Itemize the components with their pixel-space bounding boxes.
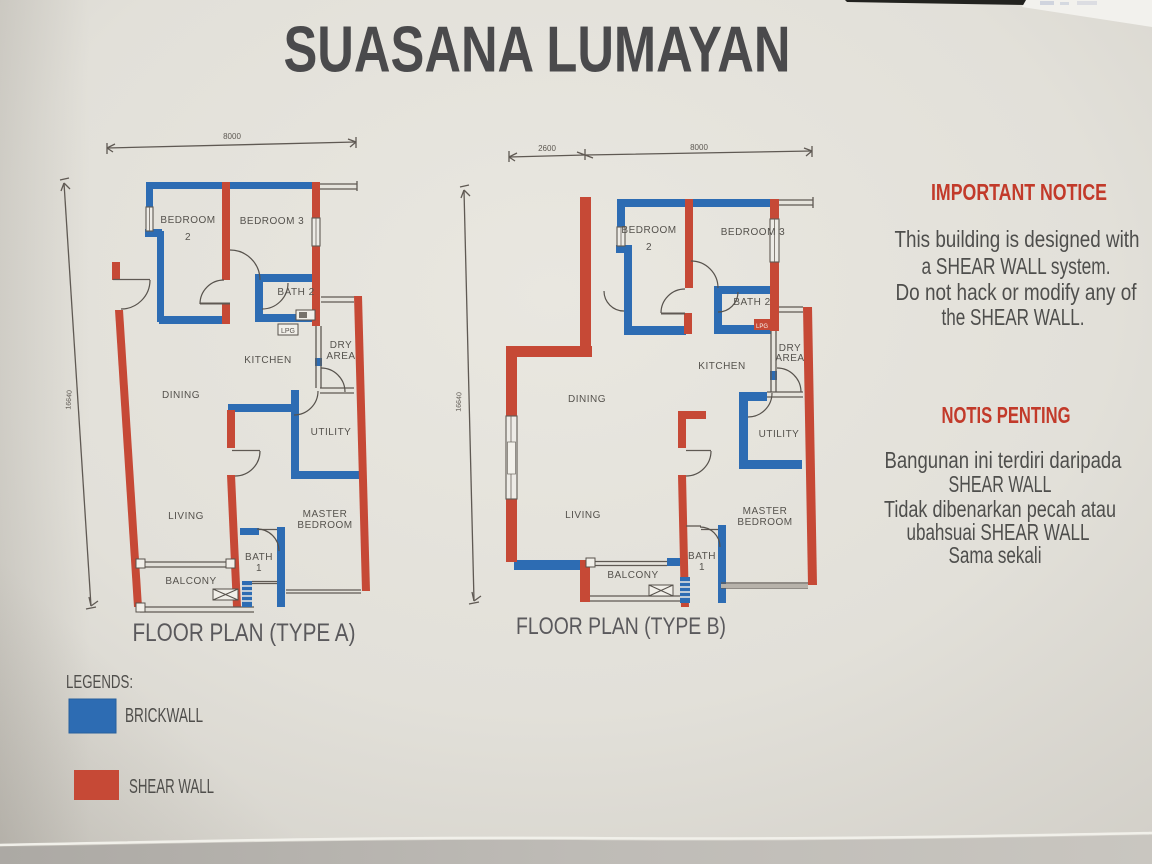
svg-text:1: 1: [256, 563, 262, 574]
svg-text:8000: 8000: [690, 143, 708, 152]
svg-text:a SHEAR WALL system.: a SHEAR WALL system.: [922, 253, 1111, 279]
svg-text:NOTIS PENTING: NOTIS PENTING: [942, 402, 1071, 428]
svg-text:SHEAR WALL: SHEAR WALL: [129, 776, 214, 798]
svg-text:Sama sekali: Sama sekali: [949, 542, 1042, 568]
svg-text:MASTER: MASTER: [303, 509, 348, 520]
svg-text:AREA: AREA: [775, 353, 804, 364]
svg-text:16640: 16640: [65, 390, 73, 410]
svg-text:BATH: BATH: [245, 552, 273, 563]
svg-text:BALCONY: BALCONY: [607, 570, 658, 581]
svg-text:BEDROOM: BEDROOM: [621, 225, 676, 236]
svg-text:16640: 16640: [456, 392, 464, 412]
svg-text:FLOOR PLAN (TYPE B): FLOOR PLAN (TYPE B): [516, 613, 726, 640]
svg-text:BRICKWALL: BRICKWALL: [125, 705, 203, 727]
svg-text:DINING: DINING: [568, 394, 606, 405]
svg-text:2: 2: [646, 242, 652, 253]
svg-text:MASTER: MASTER: [743, 506, 788, 517]
svg-text:the SHEAR WALL.: the SHEAR WALL.: [942, 304, 1085, 330]
svg-text:2600: 2600: [538, 144, 556, 153]
svg-text:SUASANA LUMAYAN: SUASANA LUMAYAN: [284, 13, 791, 86]
svg-text:DINING: DINING: [162, 390, 200, 401]
svg-text:BATH: BATH: [688, 551, 716, 562]
svg-text:LEGENDS:: LEGENDS:: [66, 672, 133, 692]
svg-text:1: 1: [699, 562, 705, 573]
svg-text:BATH 2: BATH 2: [733, 297, 770, 308]
svg-text:LIVING: LIVING: [168, 511, 204, 522]
svg-text:BEDROOM 3: BEDROOM 3: [721, 227, 786, 238]
svg-text:LPG: LPG: [281, 328, 295, 335]
svg-text:BEDROOM 3: BEDROOM 3: [240, 216, 305, 227]
svg-text:This building is designed with: This building is designed with: [895, 226, 1140, 252]
svg-text:BEDROOM: BEDROOM: [737, 517, 792, 528]
svg-text:FLOOR PLAN (TYPE A): FLOOR PLAN (TYPE A): [133, 619, 356, 647]
svg-text:2: 2: [185, 232, 191, 243]
svg-text:BEDROOM: BEDROOM: [160, 215, 215, 226]
svg-text:8000: 8000: [223, 132, 241, 141]
svg-text:DRY: DRY: [330, 340, 352, 351]
svg-text:LPG: LPG: [756, 324, 768, 330]
svg-text:Bangunan ini terdiri daripada: Bangunan ini terdiri daripada: [885, 447, 1123, 473]
svg-text:IMPORTANT NOTICE: IMPORTANT NOTICE: [931, 179, 1107, 205]
svg-text:UTILITY: UTILITY: [759, 429, 800, 440]
svg-text:BEDROOM: BEDROOM: [297, 520, 352, 531]
svg-text:KITCHEN: KITCHEN: [698, 361, 745, 372]
svg-text:BALCONY: BALCONY: [165, 576, 216, 587]
svg-text:LIVING: LIVING: [565, 510, 601, 521]
svg-text:Do not hack or modify any of: Do not hack or modify any of: [896, 279, 1137, 305]
svg-text:BATH 2: BATH 2: [277, 287, 314, 298]
svg-text:AREA: AREA: [326, 351, 355, 362]
svg-text:KITCHEN: KITCHEN: [244, 355, 291, 366]
svg-text:SHEAR WALL: SHEAR WALL: [949, 471, 1052, 497]
svg-text:UTILITY: UTILITY: [311, 427, 352, 438]
